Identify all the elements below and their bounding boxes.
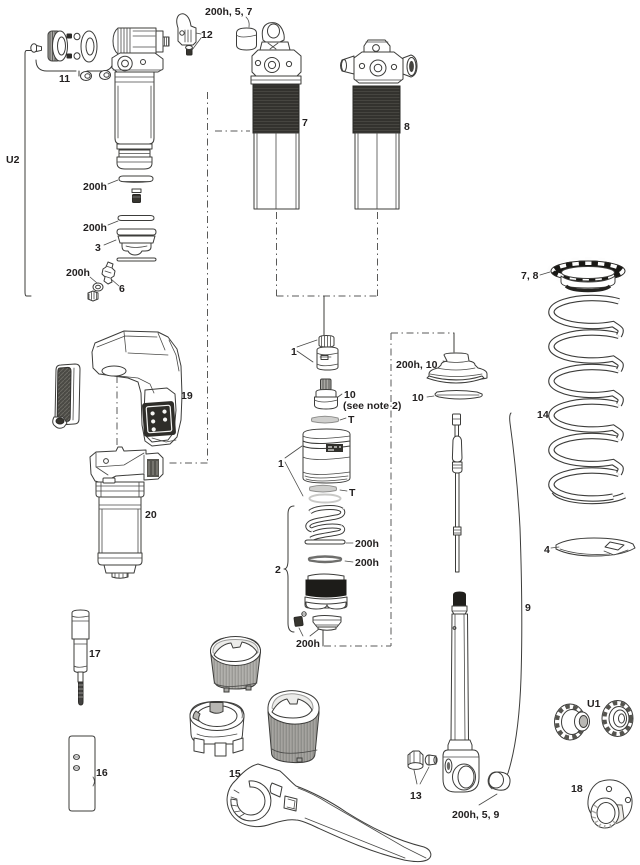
svg-text:4: 4 [544,544,550,556]
svg-text:7, 8: 7, 8 [521,270,539,282]
svg-text:16: 16 [96,767,108,779]
svg-text:6: 6 [119,283,125,295]
svg-text:7: 7 [302,117,308,129]
svg-text:18: 18 [571,783,583,795]
svg-text:200h: 200h [83,222,107,234]
svg-text:200h: 200h [83,181,107,193]
svg-text:200h: 200h [355,538,379,550]
svg-text:20: 20 [145,509,157,521]
svg-text:3: 3 [95,242,101,254]
svg-text:17: 17 [89,648,101,660]
svg-text:10: 10 [412,392,424,404]
svg-text:200h: 200h [66,267,90,279]
svg-text:(see note 2): (see note 2) [343,400,401,412]
svg-text:200h, 5, 9: 200h, 5, 9 [452,809,499,821]
svg-text:T: T [348,414,355,426]
svg-text:14: 14 [537,409,549,421]
svg-text:13: 13 [410,790,422,802]
svg-text:12: 12 [201,29,213,41]
svg-text:200h: 200h [296,638,320,650]
svg-text:U2: U2 [6,154,20,166]
svg-text:8: 8 [404,121,410,133]
svg-text:9: 9 [525,602,531,614]
svg-text:1: 1 [278,458,284,470]
svg-text:U1: U1 [587,698,601,710]
svg-text:11: 11 [59,73,70,85]
svg-text:200h, 5, 7: 200h, 5, 7 [205,6,252,18]
svg-text:200h: 200h [355,557,379,569]
svg-text:T: T [349,487,356,499]
svg-text:2: 2 [275,564,281,576]
svg-text:1: 1 [291,346,297,358]
svg-text:19: 19 [181,390,193,402]
svg-text:200h, 10: 200h, 10 [396,359,438,371]
